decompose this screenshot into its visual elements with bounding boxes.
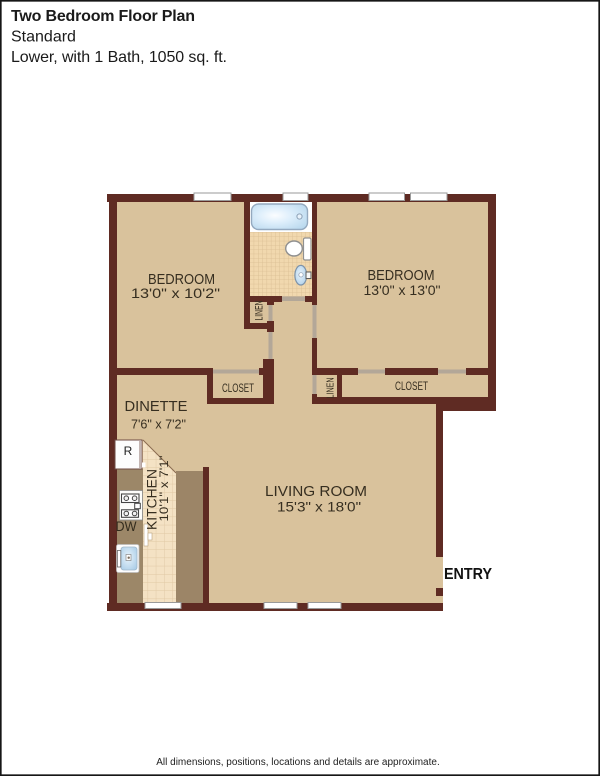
svg-text:10'1" x 7'1": 10'1" x 7'1" [157, 456, 171, 522]
svg-text:7'6" x 7'2": 7'6" x 7'2" [131, 417, 186, 432]
svg-text:Standard: Standard [11, 29, 76, 46]
svg-text:13'0" x 10'2": 13'0" x 10'2" [131, 285, 220, 301]
svg-text:DW: DW [116, 519, 137, 534]
svg-text:LINEN: LINEN [324, 378, 336, 399]
svg-text:ENTRY: ENTRY [444, 566, 492, 583]
svg-text:CLOSET: CLOSET [395, 379, 428, 393]
svg-text:Lower, with 1 Bath, 1050 sq. f: Lower, with 1 Bath, 1050 sq. ft. [11, 49, 227, 66]
svg-text:CLOSET: CLOSET [222, 381, 254, 395]
svg-text:LINEN: LINEN [254, 300, 266, 320]
svg-text:Two Bedroom Floor Plan: Two Bedroom Floor Plan [11, 8, 195, 25]
svg-text:All dimensions, positions, loc: All dimensions, positions, locations and… [156, 757, 440, 768]
svg-text:LIVING ROOM: LIVING ROOM [265, 483, 367, 500]
svg-text:13'0" x 13'0": 13'0" x 13'0" [364, 282, 441, 298]
svg-text:15'3" x 18'0": 15'3" x 18'0" [277, 499, 361, 515]
svg-text:DINETTE: DINETTE [125, 399, 188, 415]
svg-text:R: R [124, 444, 133, 458]
